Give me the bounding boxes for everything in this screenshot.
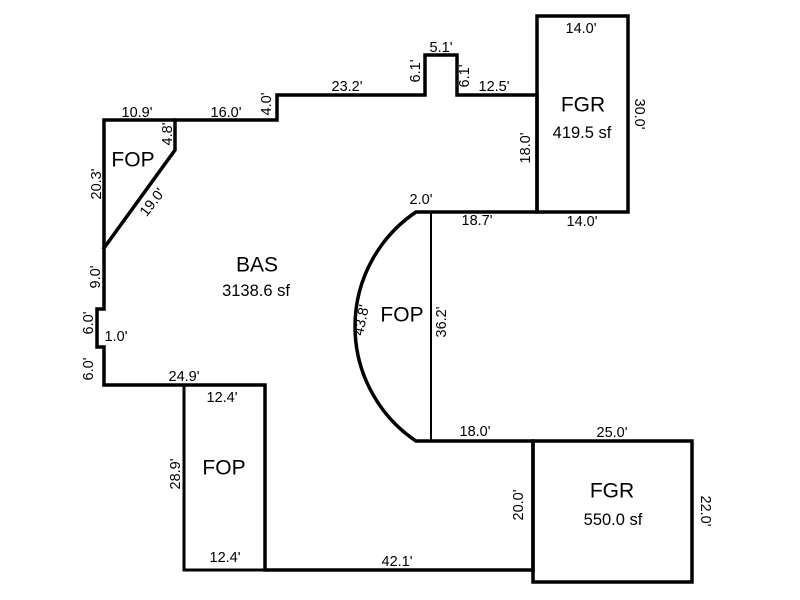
room-labels: FOPBAS3138.6 sfFGR419.5 sfFOPFOPFGR550.0…	[111, 93, 642, 528]
room-code-label: FOP	[111, 148, 154, 171]
dimension-label: 20.3'	[89, 168, 105, 199]
dimension-label: 4.8'	[160, 122, 176, 145]
room-area-label: 3138.6 sf	[222, 282, 290, 300]
dimension-label: 12.4'	[210, 550, 241, 566]
dimension-label: 25.0'	[597, 425, 628, 441]
dimension-label: 24.9'	[169, 369, 200, 385]
dimension-label: 2.0'	[410, 192, 433, 208]
dimension-label: 36.2'	[434, 306, 450, 337]
dimension-label: 20.0'	[511, 489, 527, 520]
dimension-label: 18.0'	[518, 132, 534, 163]
room-code-label: FOP	[202, 456, 245, 479]
room-code-label: FOP	[380, 303, 423, 326]
room-area-label: 419.5 sf	[553, 124, 612, 142]
dimension-label: 14.0'	[566, 21, 597, 37]
dimension-label: 6.0'	[81, 357, 97, 380]
dimension-label: 18.0'	[460, 424, 491, 440]
room-code-label: FGR	[561, 93, 605, 116]
dimension-label: 22.0'	[697, 496, 713, 527]
dimension-label: 6.1'	[457, 64, 473, 87]
dimension-label: 1.0'	[105, 329, 128, 345]
dimension-label: 43.8'	[351, 303, 373, 337]
dimension-label: 18.7'	[462, 213, 493, 229]
dimension-label: 16.0'	[211, 105, 242, 121]
dimension-label: 30.0'	[631, 99, 647, 130]
dimension-label: 6.0'	[81, 311, 97, 334]
room-area-label: 550.0 sf	[584, 511, 643, 529]
dimension-label: 14.0'	[567, 214, 598, 230]
dimension-label: 23.2'	[332, 79, 363, 95]
dimension-label: 12.4'	[207, 390, 238, 406]
floorplan-canvas: 10.9'16.0'4.0'23.2'6.1'5.1'6.1'12.5'14.0…	[0, 0, 800, 600]
dimension-label: 28.9'	[168, 458, 184, 489]
dimension-label: 4.0'	[259, 92, 275, 115]
dimension-label: 19.0'	[137, 185, 169, 219]
dimension-label: 5.1'	[430, 40, 453, 56]
room-code-label: BAS	[236, 253, 278, 276]
dimension-label: 6.1'	[408, 59, 424, 82]
dimension-label: 12.5'	[479, 79, 510, 95]
dimension-label: 10.9'	[122, 105, 153, 121]
room-code-label: FGR	[590, 479, 634, 502]
dimension-label: 9.0'	[88, 265, 104, 288]
dimension-label: 42.1'	[382, 554, 413, 570]
floorplan-sketch-svg: 10.9'16.0'4.0'23.2'6.1'5.1'6.1'12.5'14.0…	[0, 0, 800, 600]
